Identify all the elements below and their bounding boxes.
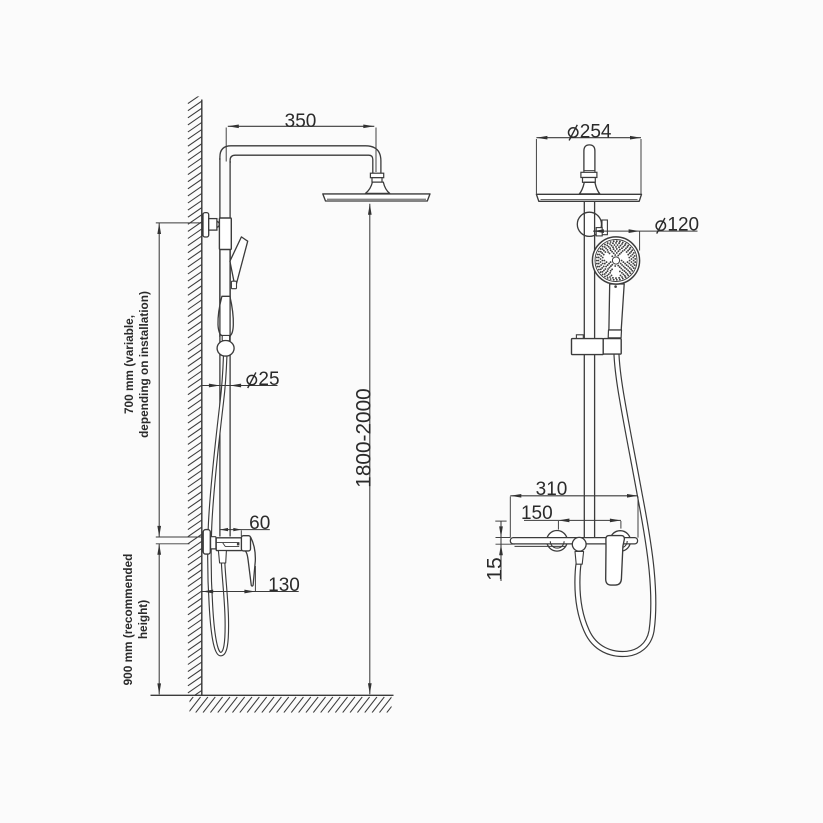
svg-text:25: 25 xyxy=(258,369,279,390)
svg-text:15: 15 xyxy=(484,557,507,581)
svg-text:120: 120 xyxy=(667,215,699,236)
svg-text:depending on installation): depending on installation) xyxy=(137,291,151,438)
svg-text:254: 254 xyxy=(580,121,612,142)
svg-text:350: 350 xyxy=(285,111,317,132)
svg-text:310: 310 xyxy=(536,479,568,500)
svg-text:130: 130 xyxy=(268,575,300,596)
svg-text:150: 150 xyxy=(521,503,553,524)
svg-text:height): height) xyxy=(136,600,150,639)
svg-text:1800-2000: 1800-2000 xyxy=(353,388,376,487)
svg-text:700 mm (variable,: 700 mm (variable, xyxy=(122,315,136,414)
svg-text:900 mm (recommended: 900 mm (recommended xyxy=(121,554,135,686)
svg-text:60: 60 xyxy=(249,513,270,534)
